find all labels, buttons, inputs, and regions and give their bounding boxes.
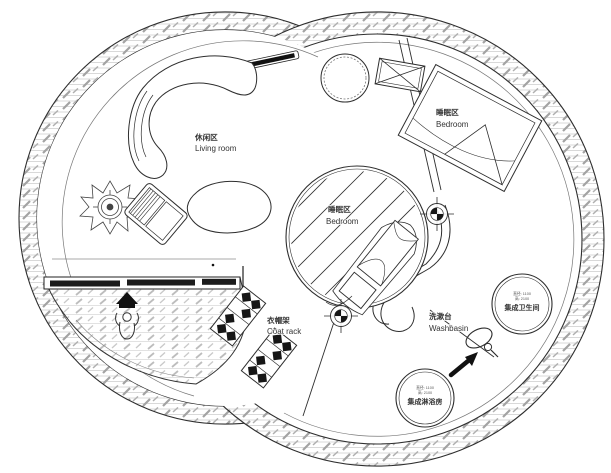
label-living-room-en: Living room xyxy=(195,144,237,153)
round-table-icon xyxy=(321,54,369,102)
floor-plan-drawing: 休闲区 Living room 睡眠区 Bedroom 睡眠区 Bedroom … xyxy=(0,0,611,473)
shower-pod xyxy=(396,369,454,427)
label-coat-rack-en: Coat rack xyxy=(267,327,302,336)
floor-plan-canvas: 休闲区 Living room 睡眠区 Bedroom 睡眠区 Bedroom … xyxy=(0,0,611,473)
label-coat-rack-zh: 衣帽架 xyxy=(267,315,290,325)
label-washbasin-en: Washbasin xyxy=(429,324,468,333)
toilet-pod xyxy=(492,274,552,334)
label-bedroom-center-en: Bedroom xyxy=(326,217,359,226)
label-living-room-zh: 休闲区 xyxy=(194,132,218,142)
shower-pod-dim-height: 高: 2100 xyxy=(418,390,432,395)
label-bedroom-upper-en: Bedroom xyxy=(436,120,469,129)
label-bedroom-center-zh: 睡眠区 xyxy=(328,204,351,214)
label-bedroom-upper-zh: 睡眠区 xyxy=(436,107,459,117)
shower-pod-dim-diameter: 直径: 1100 xyxy=(416,385,434,390)
toilet-pod-dim-diameter: 直径: 1100 xyxy=(513,291,531,296)
shower-pod-name: 集成淋浴房 xyxy=(407,397,443,406)
dot-marker xyxy=(212,264,215,267)
toilet-pod-name: 集成卫生间 xyxy=(504,303,540,312)
label-washbasin-zh: 洗漱台 xyxy=(429,311,452,321)
toilet-pod-dim-height: 高: 2100 xyxy=(515,296,529,301)
